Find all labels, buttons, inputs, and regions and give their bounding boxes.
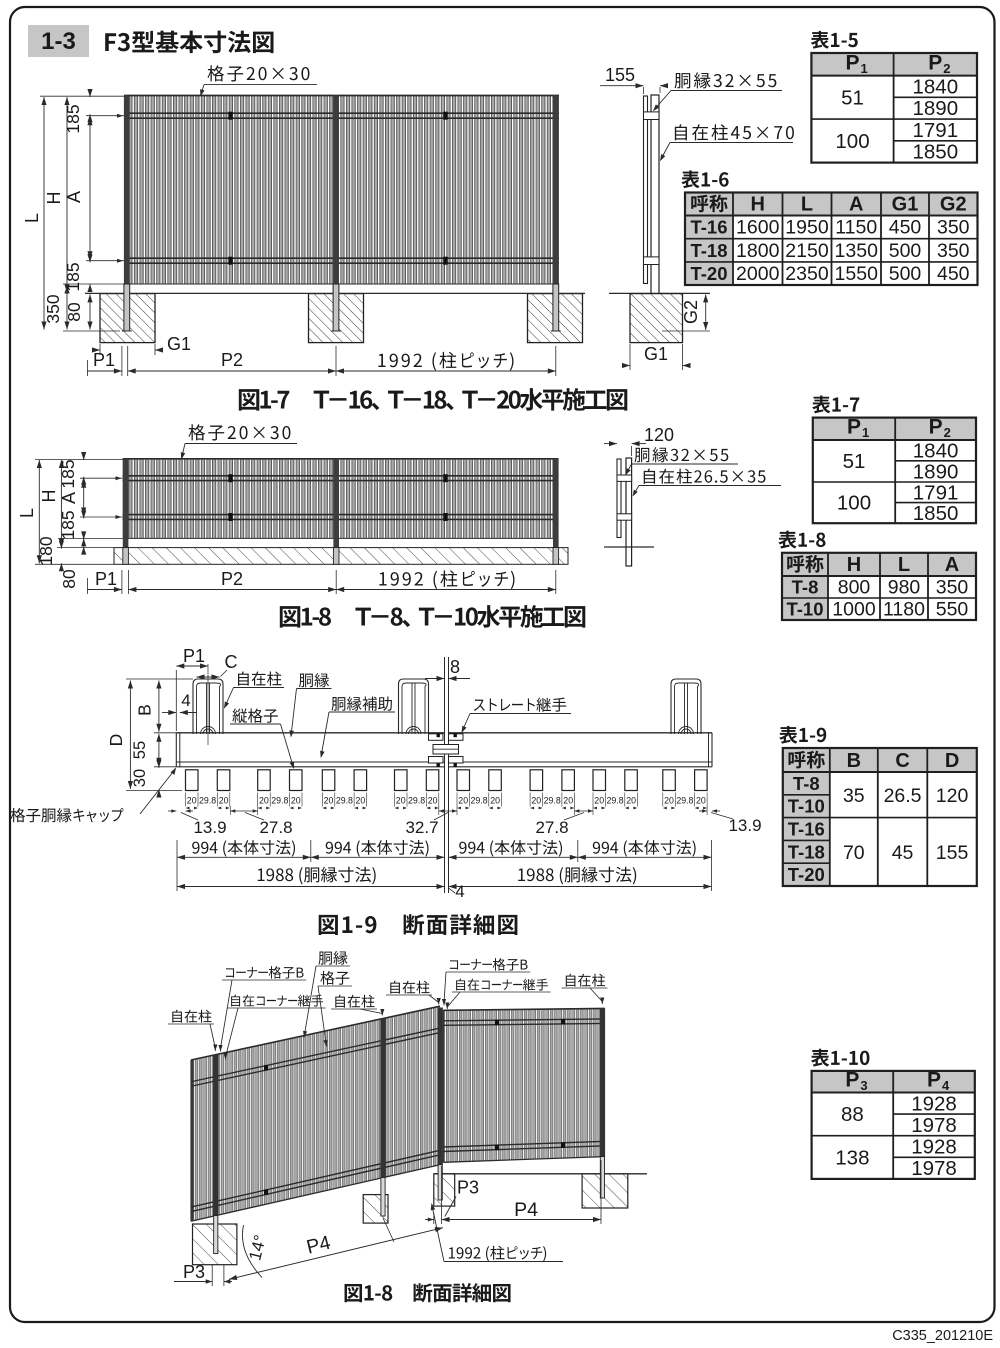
svg-text:51: 51	[841, 86, 864, 109]
svg-text:20: 20	[324, 796, 334, 806]
svg-text:P: P	[929, 416, 943, 439]
svg-text:G2: G2	[681, 300, 701, 324]
svg-text:1850: 1850	[913, 502, 959, 525]
svg-text:1928: 1928	[911, 1092, 957, 1115]
svg-text:27.8: 27.8	[259, 818, 292, 837]
svg-text:T-8: T-8	[792, 577, 819, 598]
svg-text:185: 185	[58, 510, 78, 539]
svg-text:3: 3	[860, 1078, 867, 1093]
svg-text:G1: G1	[167, 334, 191, 354]
svg-text:H: H	[751, 194, 765, 216]
svg-text:4: 4	[455, 882, 464, 901]
svg-text:29.8: 29.8	[199, 796, 216, 806]
svg-text:1-3: 1-3	[41, 28, 76, 55]
svg-text:1791: 1791	[912, 119, 958, 142]
svg-text:32.7: 32.7	[405, 818, 438, 837]
svg-text:P: P	[928, 51, 942, 74]
svg-text:20: 20	[428, 796, 438, 806]
svg-text:C: C	[895, 750, 909, 772]
svg-text:1978: 1978	[911, 1114, 957, 1137]
svg-text:T-18: T-18	[788, 841, 825, 862]
svg-text:550: 550	[936, 599, 969, 621]
svg-text:A: A	[59, 492, 79, 504]
svg-text:20: 20	[531, 796, 541, 806]
svg-text:2: 2	[944, 425, 951, 440]
svg-text:180: 180	[36, 536, 56, 565]
svg-text:20: 20	[291, 796, 301, 806]
svg-text:29.8: 29.8	[271, 796, 288, 806]
svg-text:1: 1	[860, 61, 867, 76]
svg-text:80: 80	[64, 302, 84, 322]
svg-text:20: 20	[664, 796, 674, 806]
svg-text:350: 350	[936, 577, 969, 599]
svg-text:20: 20	[696, 796, 706, 806]
svg-text:P2: P2	[221, 350, 243, 370]
svg-text:2: 2	[943, 61, 950, 76]
svg-text:G1: G1	[644, 344, 668, 364]
svg-text:350: 350	[937, 240, 970, 262]
svg-text:450: 450	[889, 217, 922, 239]
svg-text:29.8: 29.8	[408, 796, 425, 806]
svg-text:1978: 1978	[911, 1157, 957, 1180]
svg-text:L: L	[22, 213, 42, 223]
svg-text:P1: P1	[93, 350, 115, 370]
svg-text:350: 350	[937, 217, 970, 239]
svg-text:A: A	[64, 191, 84, 203]
svg-text:29.8: 29.8	[471, 796, 488, 806]
svg-text:T-20: T-20	[788, 864, 825, 885]
svg-text:20: 20	[594, 796, 604, 806]
svg-text:185: 185	[63, 262, 83, 291]
svg-text:H: H	[44, 192, 64, 205]
svg-text:1600: 1600	[736, 217, 780, 239]
svg-text:29.8: 29.8	[336, 796, 353, 806]
svg-text:13.9: 13.9	[728, 816, 761, 835]
svg-text:P3: P3	[183, 1262, 205, 1282]
svg-text:T-8: T-8	[793, 773, 820, 794]
svg-text:P: P	[845, 1068, 859, 1091]
svg-text:1: 1	[862, 425, 869, 440]
svg-text:4: 4	[181, 691, 190, 710]
svg-text:D: D	[945, 750, 959, 772]
svg-text:P: P	[847, 416, 861, 439]
svg-text:20: 20	[458, 796, 468, 806]
svg-text:1800: 1800	[736, 240, 780, 262]
svg-text:1150: 1150	[835, 217, 877, 239]
svg-text:P1: P1	[95, 569, 117, 589]
svg-text:P: P	[927, 1068, 941, 1091]
svg-text:35: 35	[843, 785, 865, 807]
svg-text:A: A	[945, 554, 959, 576]
svg-text:55: 55	[131, 741, 149, 759]
svg-text:1950: 1950	[785, 217, 829, 239]
svg-text:T-16: T-16	[788, 819, 825, 840]
svg-text:120: 120	[936, 785, 969, 807]
svg-text:29.8: 29.8	[544, 796, 561, 806]
svg-text:L: L	[801, 194, 813, 216]
svg-text:20: 20	[563, 796, 573, 806]
svg-text:T-18: T-18	[690, 240, 727, 261]
svg-text:45: 45	[892, 842, 914, 864]
svg-text:29.8: 29.8	[607, 796, 624, 806]
svg-text:88: 88	[841, 1103, 864, 1126]
svg-text:20: 20	[187, 796, 197, 806]
svg-text:20: 20	[626, 796, 636, 806]
svg-text:P3: P3	[457, 1178, 479, 1198]
svg-text:G2: G2	[940, 194, 967, 216]
svg-text:120: 120	[644, 425, 674, 445]
svg-text:1000: 1000	[832, 599, 876, 621]
svg-text:13.9: 13.9	[193, 818, 226, 837]
svg-text:1890: 1890	[912, 97, 958, 120]
svg-text:155: 155	[936, 842, 969, 864]
svg-text:27.8: 27.8	[535, 818, 568, 837]
svg-text:1180: 1180	[883, 599, 925, 621]
svg-text:P4: P4	[514, 1199, 538, 1221]
svg-text:70: 70	[843, 842, 865, 864]
svg-text:1890: 1890	[913, 460, 959, 483]
svg-text:51: 51	[843, 450, 866, 473]
svg-text:29.8: 29.8	[676, 796, 693, 806]
svg-text:20: 20	[356, 796, 366, 806]
svg-text:L: L	[17, 508, 37, 518]
svg-text:500: 500	[889, 263, 922, 285]
svg-text:A: A	[849, 194, 863, 216]
svg-text:C: C	[225, 652, 238, 672]
svg-text:1928: 1928	[911, 1136, 957, 1159]
svg-text:350: 350	[43, 294, 63, 323]
svg-text:P1: P1	[183, 646, 205, 666]
svg-text:L: L	[898, 554, 910, 576]
svg-text:T-10: T-10	[786, 599, 823, 620]
svg-text:800: 800	[838, 577, 871, 599]
svg-text:T-10: T-10	[788, 796, 825, 817]
svg-text:185: 185	[58, 459, 78, 488]
svg-text:D: D	[106, 734, 126, 747]
svg-text:H: H	[39, 490, 59, 503]
svg-text:20: 20	[490, 796, 500, 806]
svg-text:100: 100	[835, 130, 869, 153]
svg-text:1850: 1850	[912, 141, 958, 164]
svg-text:8: 8	[450, 657, 460, 677]
svg-text:30: 30	[131, 769, 149, 787]
svg-text:P2: P2	[221, 569, 243, 589]
svg-text:980: 980	[888, 577, 921, 599]
svg-text:C335_201210E: C335_201210E	[892, 1328, 993, 1344]
svg-text:B: B	[135, 704, 155, 716]
svg-text:1840: 1840	[913, 439, 959, 462]
svg-text:1791: 1791	[913, 481, 959, 504]
svg-text:B: B	[847, 750, 861, 772]
svg-text:2000: 2000	[736, 263, 780, 285]
svg-text:2150: 2150	[785, 240, 829, 262]
svg-text:T-16: T-16	[690, 217, 727, 238]
svg-text:H: H	[847, 554, 861, 576]
svg-text:20: 20	[219, 796, 229, 806]
svg-text:G1: G1	[892, 194, 919, 216]
svg-text:4: 4	[942, 1078, 950, 1093]
svg-text:100: 100	[837, 492, 871, 515]
svg-text:1350: 1350	[835, 240, 879, 262]
svg-text:T-20: T-20	[690, 263, 727, 284]
svg-text:450: 450	[937, 263, 970, 285]
svg-text:20: 20	[259, 796, 269, 806]
svg-text:20: 20	[396, 796, 406, 806]
svg-text:500: 500	[889, 240, 922, 262]
svg-text:155: 155	[605, 65, 635, 85]
svg-text:138: 138	[835, 1146, 869, 1169]
svg-text:1550: 1550	[835, 263, 879, 285]
svg-text:80: 80	[59, 569, 79, 589]
svg-text:2350: 2350	[785, 263, 829, 285]
svg-text:1840: 1840	[912, 75, 958, 98]
svg-text:185: 185	[63, 104, 83, 133]
svg-text:26.5: 26.5	[884, 785, 922, 807]
svg-text:P: P	[845, 51, 859, 74]
